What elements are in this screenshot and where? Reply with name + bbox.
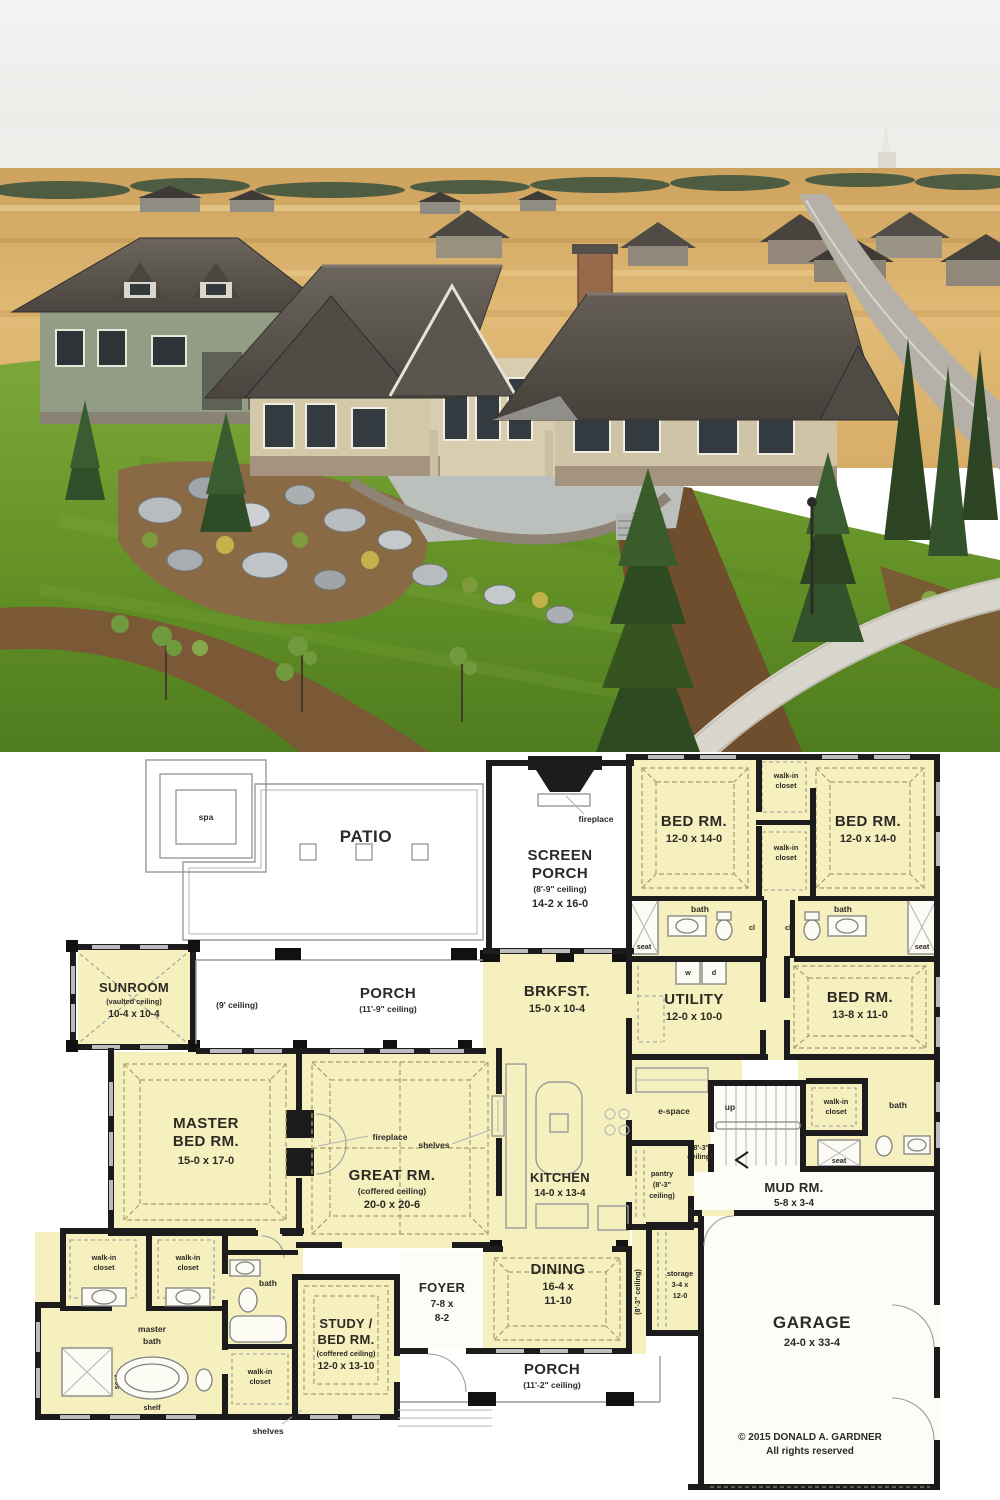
label-mud-size: 5-8 x 3-4: [774, 1198, 814, 1209]
svg-text:walk-in: walk-in: [773, 771, 799, 780]
listing-pin-image: PATIO spa fireplace SCREEN PORCH (8'-9" …: [0, 0, 1000, 1500]
label-bed3-name: BED RM.: [835, 813, 901, 830]
label-dining-s1: 16-4 x: [542, 1281, 574, 1293]
svg-text:walk-in: walk-in: [247, 1367, 273, 1376]
label-copyright-2: All rights reserved: [766, 1446, 854, 1457]
aerial-photo: [0, 0, 1000, 752]
label-storage-s1: 3-4 x: [672, 1280, 689, 1289]
patio-area: PATIO: [183, 784, 483, 940]
svg-text:walk-in: walk-in: [773, 843, 799, 852]
label-great-name: GREAT RM.: [349, 1167, 436, 1184]
label-study-bath: bath: [259, 1278, 277, 1288]
svg-text:shelves: shelves: [252, 1426, 283, 1436]
svg-text:d: d: [712, 968, 716, 977]
label-screenporch-ceiling: (8'-9" ceiling): [533, 884, 586, 894]
label-patio: PATIO: [340, 827, 392, 846]
label-bed2-size: 12-0 x 14-0: [666, 833, 722, 845]
svg-text:bath: bath: [691, 904, 709, 914]
front-wall: [394, 1348, 632, 1392]
svg-text:w: w: [684, 968, 691, 977]
label-screenporch-size: 14-2 x 16-0: [532, 898, 588, 910]
label-master-size: 15-0 x 17-0: [178, 1155, 234, 1167]
svg-text:closet: closet: [177, 1263, 199, 1272]
label-great-size: 20-0 x 20-6: [364, 1199, 420, 1211]
label-utility-size: 12-0 x 10-0: [666, 1011, 722, 1023]
svg-text:bath: bath: [889, 1100, 907, 1110]
svg-text:closet: closet: [775, 853, 797, 862]
label-screenporch-1: SCREEN: [528, 847, 593, 864]
svg-text:seat: seat: [832, 1156, 847, 1165]
label-espace: e-space: [658, 1106, 690, 1116]
breakfast-room: BRKFST. 15-0 x 10-4: [524, 983, 590, 1015]
screen-porch: fireplace SCREEN PORCH (8'-9" ceiling) 1…: [480, 756, 634, 962]
svg-text:(8'-3": (8'-3": [653, 1180, 671, 1189]
label-bed4-size: 13-8 x 11-0: [832, 1009, 888, 1021]
label-garage-name: GARAGE: [773, 1313, 851, 1332]
svg-text:walk-in: walk-in: [175, 1253, 201, 1262]
front-porch: PORCH (11'-2" ceiling): [398, 1356, 660, 1426]
label-garage-size: 24-0 x 33-4: [784, 1337, 841, 1349]
label-sunroom-ceiling: (vaulted ceiling): [106, 997, 162, 1006]
label-shelves-great: shelves: [418, 1140, 449, 1150]
label-frontporch-name: PORCH: [524, 1361, 580, 1378]
label-pantry: pantry: [651, 1169, 674, 1178]
svg-text:seat: seat: [915, 942, 930, 951]
label-study-size: 12-0 x 13-10: [318, 1361, 375, 1372]
svg-text:seat: seat: [637, 942, 652, 951]
label-foyer-name: FOYER: [419, 1280, 466, 1295]
label-dining-s2: 11-10: [544, 1295, 572, 1307]
label-kitchen-name: KITCHEN: [530, 1170, 590, 1185]
label-storage: storage: [667, 1269, 693, 1278]
label-shelf: shelf: [143, 1403, 161, 1412]
label-spa: spa: [199, 812, 214, 822]
floor-plan-drawing: PATIO spa fireplace SCREEN PORCH (8'-9" …: [0, 752, 1000, 1500]
svg-text:ceiling): ceiling): [649, 1191, 675, 1200]
label-sunroom-name: SUNROOM: [99, 980, 169, 995]
label-bed4-name: BED RM.: [827, 989, 893, 1006]
label-masterbath-1: master: [138, 1324, 167, 1334]
label-rearporch-ceiling: (11'-9" ceiling): [359, 1004, 417, 1014]
svg-text:walk-in: walk-in: [823, 1097, 849, 1106]
label-study-1: STUDY /: [319, 1316, 372, 1331]
label-up: up: [725, 1102, 735, 1112]
label-masterbath-2: bath: [143, 1336, 161, 1346]
label-screenporch-2: PORCH: [532, 865, 588, 882]
spa: spa: [146, 760, 266, 872]
label-kitchen-size: 14-0 x 13-4: [534, 1188, 586, 1199]
label-great-ceiling: (coffered ceiling): [358, 1186, 427, 1196]
svg-text:closet: closet: [825, 1107, 847, 1116]
label-foyer-s2: 8-2: [435, 1313, 450, 1324]
svg-text:closet: closet: [249, 1377, 271, 1386]
label-foyer-s1: 7-8 x: [431, 1299, 454, 1310]
label-master-1: MASTER: [173, 1115, 239, 1132]
label-bed2-name: BED RM.: [661, 813, 727, 830]
label-brkfst-size: 15-0 x 10-4: [529, 1003, 586, 1015]
label-dining-name: DINING: [531, 1261, 586, 1278]
rear-porch: (9' ceiling) PORCH (11'-9" ceiling): [196, 948, 483, 1049]
label-mud-name: MUD RM.: [764, 1180, 823, 1195]
label-study-ceiling: (coffered ceiling): [317, 1349, 376, 1358]
label-sunroom-size: 10-4 x 10-4: [108, 1009, 160, 1020]
label-frontporch-ceiling: (11'-2" ceiling): [523, 1380, 581, 1390]
label-cl-left: cl: [749, 923, 755, 932]
svg-text:bath: bath: [834, 904, 852, 914]
label-storage-s2: 12-0: [673, 1291, 688, 1300]
label-bed3-size: 12-0 x 14-0: [840, 833, 896, 845]
svg-text:closet: closet: [93, 1263, 115, 1272]
svg-text:walk-in: walk-in: [91, 1253, 117, 1262]
label-fireplace-screenporch: fireplace: [579, 814, 614, 824]
label-9-ceiling: (9' ceiling): [216, 1000, 258, 1010]
label-master-2: BED RM.: [173, 1133, 239, 1150]
label-copyright-1: © 2015 DONALD A. GARDNER: [738, 1432, 882, 1443]
label-fireplace-great: fireplace: [373, 1132, 408, 1142]
label-utility-name: UTILITY: [664, 991, 723, 1008]
label-ceil83-vertical: (8'-3" ceiling): [633, 1269, 642, 1315]
label-brkfst-name: BRKFST.: [524, 983, 590, 1000]
svg-text:closet: closet: [775, 781, 797, 790]
label-study-2: BED RM.: [318, 1332, 375, 1347]
label-rearporch-name: PORCH: [360, 985, 416, 1002]
